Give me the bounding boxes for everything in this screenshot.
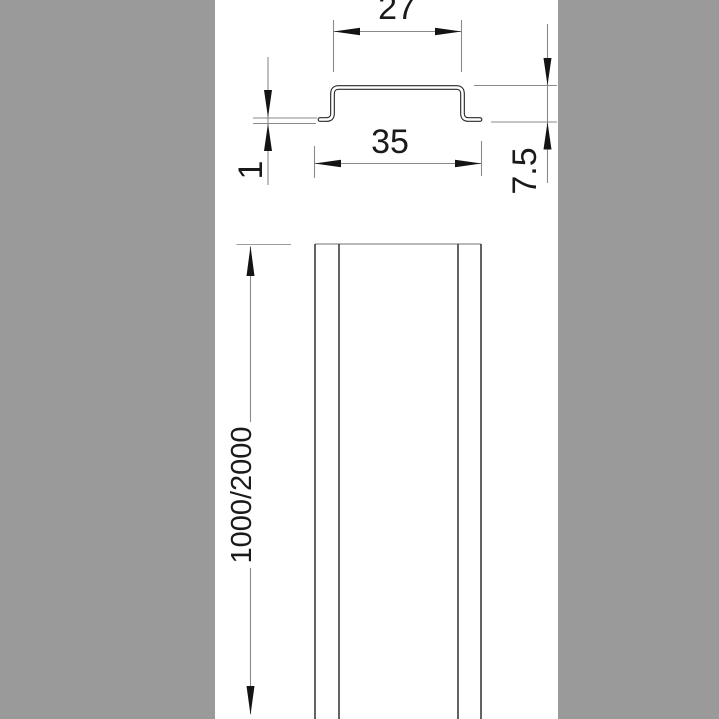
arrowhead-7p5-top bbox=[544, 58, 552, 86]
arrowhead-27-left bbox=[334, 28, 361, 35]
arrowhead-length-top bbox=[247, 246, 255, 276]
arrowhead-1-top bbox=[264, 90, 272, 118]
dimension-rail-length: 1000/2000 bbox=[226, 245, 291, 716]
rail-front-view bbox=[315, 244, 481, 719]
arrowhead-35-left bbox=[315, 160, 342, 167]
din-rail-drawing: 27 1 35 7.5 bbox=[0, 0, 719, 719]
label-rail-length: 1000/2000 bbox=[226, 426, 258, 563]
arrowhead-1-bottom bbox=[264, 124, 272, 152]
arrowhead-35-right bbox=[455, 160, 482, 167]
arrowhead-7p5-bottom bbox=[544, 122, 552, 150]
arrowhead-27-right bbox=[435, 28, 462, 35]
profile-cross-section bbox=[320, 88, 480, 120]
dimension-overall-width: 35 bbox=[315, 123, 482, 178]
label-top-width: 27 bbox=[378, 0, 416, 27]
label-profile-height: 7.5 bbox=[506, 147, 544, 194]
drawing-page: 27 1 35 7.5 bbox=[0, 0, 719, 719]
dimension-top-width: 27 bbox=[334, 0, 462, 72]
label-material-thickness: 1 bbox=[232, 161, 270, 180]
dimension-material-thickness: 1 bbox=[232, 57, 317, 185]
label-overall-width: 35 bbox=[371, 123, 409, 161]
dimension-profile-height: 7.5 bbox=[474, 24, 557, 195]
profile-outline bbox=[320, 88, 480, 120]
profile-outline-core bbox=[320, 88, 480, 120]
arrowhead-length-bottom bbox=[247, 686, 255, 715]
